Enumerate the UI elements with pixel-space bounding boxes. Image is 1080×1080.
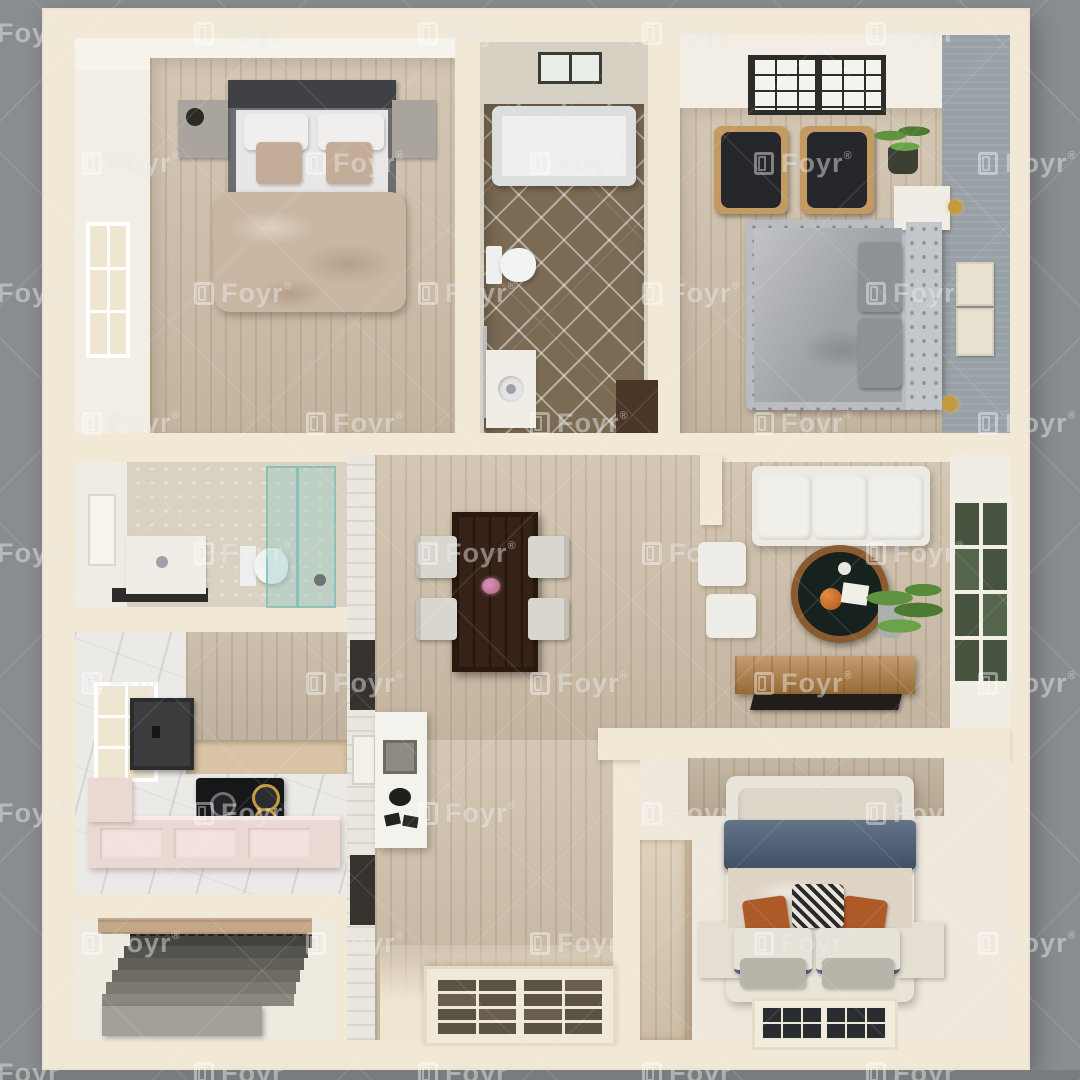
window-pane: [983, 503, 1007, 545]
door-pane: [479, 980, 517, 991]
range-hood: [130, 698, 194, 770]
door-pane: [565, 994, 603, 1005]
window-pane: [867, 1008, 885, 1022]
window-pane: [803, 1024, 821, 1038]
dining-chair: [416, 598, 457, 640]
shower-glass-seam: [296, 468, 299, 606]
window-pane: [110, 313, 127, 354]
window-pane: [983, 549, 1007, 591]
console-table: [375, 712, 427, 848]
armchair-seat: [807, 132, 867, 208]
stair-step: [112, 970, 300, 982]
window-pane: [955, 503, 979, 545]
accent-pillow: [326, 142, 372, 184]
patterned-pillow: [792, 884, 844, 928]
window-pane: [847, 1024, 865, 1038]
window-pane: [90, 226, 107, 267]
window-sash: [825, 1006, 887, 1040]
door-pane: [565, 1009, 603, 1020]
stair-step: [118, 958, 304, 970]
window-pane: [827, 1008, 845, 1022]
skylight-icon: [538, 52, 602, 84]
window-pane: [763, 1008, 781, 1022]
kitchen-counter-pink: [88, 816, 340, 868]
window-pane: [90, 270, 107, 311]
headboard: [228, 80, 396, 110]
door-pane: [438, 994, 476, 1005]
skylight-pane: [820, 60, 882, 110]
wall-art: [352, 735, 376, 785]
door-pane: [479, 1009, 517, 1020]
window-pane: [110, 270, 127, 311]
french-entry-door: [424, 966, 616, 1046]
pillow-gray: [822, 958, 894, 988]
window-pane: [98, 718, 125, 747]
cabinet-shelf: [186, 740, 347, 774]
tv: [750, 694, 902, 710]
skylight-pane: [753, 60, 815, 110]
sconce-icon: [942, 396, 958, 412]
flower-centerpiece-icon: [482, 578, 500, 594]
dining-chair: [528, 536, 569, 578]
ottoman: [698, 542, 746, 586]
table-decor-icon: [838, 562, 851, 575]
window-pane: [783, 1024, 801, 1038]
floorplan-render: Foyr®Foyr®Foyr®Foyr®Foyr®Foyr®Foyr®Foyr®…: [0, 0, 1080, 1080]
duvet: [214, 192, 406, 312]
wall-stub: [700, 455, 722, 525]
registered-mark: ®: [1068, 930, 1077, 942]
accent-wall-gray: [942, 35, 1010, 433]
table-lamp-icon: [186, 108, 204, 126]
counter-return-pink: [88, 778, 132, 822]
pillow: [858, 242, 902, 312]
door-pane: [524, 980, 562, 991]
stair-step: [106, 982, 296, 994]
stair-step: [124, 946, 308, 958]
wall-art: [956, 262, 994, 306]
fruit-bowl-icon: [820, 588, 842, 610]
door-pane: [438, 1023, 476, 1034]
nightstand: [896, 922, 944, 978]
registered-mark: ®: [1068, 150, 1077, 162]
window-pane: [90, 313, 107, 354]
door-leaf: [521, 977, 605, 1037]
sofa-cushion: [870, 476, 924, 540]
console-book-icon: [402, 815, 419, 828]
counter-panel: [248, 828, 310, 858]
pillow: [858, 318, 902, 388]
window-pane: [955, 549, 979, 591]
door-leaf: [435, 977, 519, 1037]
console-book-icon: [384, 813, 401, 827]
skylight-pane: [541, 55, 569, 81]
window-pane: [827, 1024, 845, 1038]
nightstand: [178, 100, 228, 158]
nightstand: [392, 100, 436, 158]
window-icon: [950, 498, 1012, 686]
dining-chair: [528, 598, 569, 640]
hood-vent-icon: [152, 726, 160, 738]
bottom-gray-strip: [0, 1070, 1080, 1080]
faucet-icon: [506, 384, 516, 394]
registered-mark: ®: [1068, 670, 1077, 682]
door-pane: [565, 1023, 603, 1034]
wardrobe: [640, 840, 692, 1040]
window-icon: [752, 998, 898, 1050]
window-icon: [86, 222, 130, 358]
stair-wall-wood: [98, 918, 312, 934]
tv-console: [735, 656, 915, 694]
window-pane: [803, 1008, 821, 1022]
bathtub: [492, 106, 636, 186]
window-pane: [98, 749, 125, 778]
accent-pillow: [256, 142, 302, 184]
stair-landing: [102, 1006, 262, 1036]
door-pane: [565, 980, 603, 991]
sofa-cushion: [814, 476, 868, 540]
armchair-seat: [721, 132, 781, 208]
window-sash: [761, 1006, 823, 1040]
window-pane: [98, 686, 125, 715]
console-clock-icon: [383, 740, 417, 774]
armchair: [714, 126, 788, 214]
window-pane: [763, 1024, 781, 1038]
window-pane: [955, 640, 979, 682]
window-pane: [847, 1008, 865, 1022]
window-pane: [983, 640, 1007, 682]
wall-panel-dark: [350, 640, 375, 710]
window-pane: [867, 1024, 885, 1038]
sofa-cushion: [758, 476, 812, 540]
dining-chair: [416, 536, 457, 578]
window-pane: [783, 1008, 801, 1022]
navy-blanket: [724, 820, 916, 870]
faucet-icon: [156, 556, 168, 568]
window-pane: [955, 594, 979, 636]
plant-leaves-icon: [856, 570, 952, 650]
skylight-icon: [748, 55, 886, 115]
door-pane: [479, 1023, 517, 1034]
burner-icon: [210, 792, 236, 818]
sofa: [752, 466, 930, 546]
door-pane: [438, 1009, 476, 1020]
registered-mark: ®: [1068, 410, 1077, 422]
console-vase-icon: [389, 788, 411, 806]
wall-panel-dark: [350, 855, 375, 925]
wall-art: [956, 308, 994, 356]
counter-panel: [174, 828, 236, 858]
door-pane: [524, 994, 562, 1005]
toilet: [500, 248, 536, 282]
counter-panel: [100, 828, 162, 858]
pillow-gray: [740, 958, 806, 988]
glass-shower: [266, 466, 336, 608]
window-pane: [110, 226, 127, 267]
ottoman: [706, 594, 756, 638]
door-pane: [524, 1009, 562, 1020]
door-pane: [438, 980, 476, 991]
dresser-dark: [616, 380, 658, 433]
window-pane: [983, 594, 1007, 636]
sconce-icon: [948, 200, 962, 214]
shower-drain-icon: [314, 574, 326, 586]
wall-niche: [88, 494, 116, 566]
armchair: [800, 126, 874, 214]
stair-step: [102, 994, 294, 1006]
headboard-tufted: [906, 222, 942, 410]
skylight-pane: [572, 55, 600, 81]
plant-leaves-icon: [872, 118, 932, 162]
interior-wall: [598, 728, 1010, 760]
door-pane: [524, 1023, 562, 1034]
door-pane: [479, 994, 517, 1005]
